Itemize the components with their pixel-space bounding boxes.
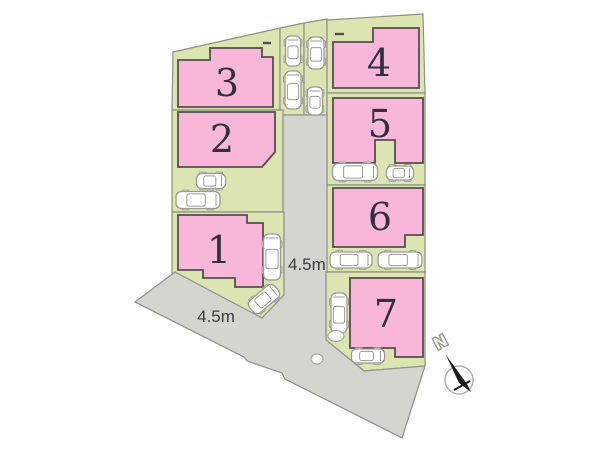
car-icon [176, 190, 220, 210]
car-icon [306, 87, 324, 115]
car-icon [352, 348, 385, 365]
building-number: 6 [368, 195, 392, 239]
car-icon [197, 172, 226, 190]
building-number: 5 [368, 102, 392, 146]
building-number: 7 [374, 292, 398, 336]
ground-marker [328, 331, 344, 342]
car-icon [333, 162, 378, 182]
road-width-label-right: 4.5m [288, 255, 326, 274]
lot-layout-plan: 3214567 4.5m 4.5m N [0, 0, 600, 450]
car-icon [307, 37, 326, 69]
car-icon [262, 234, 282, 280]
car-icon [330, 251, 372, 270]
car-icon [284, 71, 303, 109]
car-icon [378, 251, 422, 270]
building-number: 1 [207, 228, 231, 272]
building-number: 3 [215, 61, 239, 105]
north-label: N [431, 331, 451, 354]
road-width-label-bottom: 4.5m [197, 307, 235, 326]
car-icon [284, 36, 302, 66]
car-icon [330, 293, 349, 333]
building-number: 4 [367, 41, 391, 85]
ground-marker [311, 354, 323, 364]
site-plan-canvas: 3214567 4.5m 4.5m N [0, 0, 600, 450]
building-number: 2 [210, 117, 234, 161]
compass: N [431, 331, 473, 394]
car-icon [387, 165, 414, 182]
